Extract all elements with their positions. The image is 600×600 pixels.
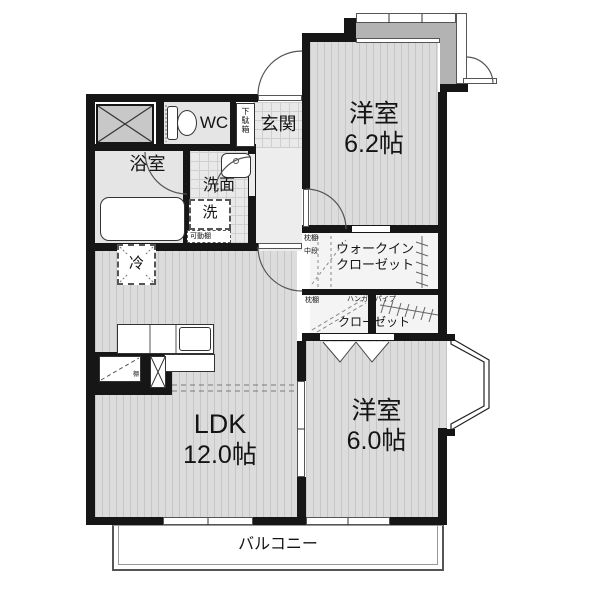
porch-side-window bbox=[456, 13, 467, 84]
wall bbox=[86, 243, 258, 251]
wic-line1: ウォークイン bbox=[315, 241, 435, 257]
closet-door-gap bbox=[320, 334, 394, 340]
bedroom-a-size: 6.2帖 bbox=[310, 129, 438, 159]
wall bbox=[302, 33, 310, 189]
bathroom-label: 浴室 bbox=[100, 154, 195, 176]
bedroom-a-label: 洋室 6.2帖 bbox=[310, 99, 438, 159]
ldk-balcony-window bbox=[163, 517, 253, 525]
ldk-label: LDK 12.0帖 bbox=[150, 408, 290, 470]
wall bbox=[86, 94, 258, 102]
refrigerator-label: 冷 bbox=[117, 255, 156, 273]
wall bbox=[297, 341, 306, 381]
sliding-door bbox=[297, 381, 305, 477]
wall bbox=[440, 84, 468, 92]
washroom-label: 洗面 bbox=[190, 176, 248, 195]
porch-window bbox=[356, 13, 456, 23]
wash-basin-icon bbox=[221, 153, 251, 178]
bedroom-a-window bbox=[356, 38, 440, 43]
wc-label: WC bbox=[196, 113, 232, 133]
balcony-label: バルコニー bbox=[114, 535, 442, 554]
bathtub-icon bbox=[100, 197, 185, 241]
closet-hanger-pipe-label: ハンガーパイプ bbox=[347, 296, 396, 303]
washing-machine-label: 洗 bbox=[189, 204, 231, 222]
ldk-name: LDK bbox=[150, 408, 290, 440]
wall bbox=[297, 477, 306, 525]
closet-pillow-shelf-label: 枕棚 bbox=[305, 297, 319, 304]
floor-plan: バルコニー WC 下駄箱 玄関 浴室 洗面 洗 可動棚 冷 棚 洋室 6.2帖 … bbox=[0, 0, 600, 600]
bedroom-a-name: 洋室 bbox=[310, 99, 438, 129]
movable-shelf-label: 可動棚 bbox=[190, 233, 211, 240]
entrance-label: 玄関 bbox=[255, 114, 302, 136]
ldk-door-panel bbox=[258, 243, 302, 249]
walk-in-closet-label: ウォークイン クローゼット bbox=[315, 241, 435, 272]
porch-door-panel bbox=[463, 78, 497, 84]
toilet-bowl-icon bbox=[177, 110, 197, 136]
ldk-size: 12.0帖 bbox=[150, 440, 290, 470]
wall bbox=[302, 94, 310, 102]
wic-line2: クローゼット bbox=[315, 257, 435, 273]
bedroom-b-label: 洋室 6.0帖 bbox=[306, 396, 447, 456]
wall bbox=[86, 517, 447, 525]
bedroom-a-door-panel bbox=[303, 189, 309, 227]
wall bbox=[156, 102, 164, 148]
shoe-cabinet-label: 下駄箱 bbox=[241, 107, 249, 134]
bedroom-b-balcony-window bbox=[306, 517, 390, 525]
pipe-space-box bbox=[96, 104, 154, 144]
entrance-door-panel bbox=[258, 95, 302, 101]
pipe-space-small bbox=[150, 356, 166, 388]
shelf-box bbox=[99, 356, 141, 382]
bedroom-b-size: 6.0帖 bbox=[306, 426, 447, 456]
kitchen-sink bbox=[179, 327, 211, 351]
wall bbox=[438, 92, 447, 233]
wall bbox=[344, 18, 356, 42]
balcony: バルコニー bbox=[112, 525, 444, 571]
wall bbox=[438, 233, 447, 338]
wic-door-gap bbox=[352, 226, 390, 232]
closet-label: クローゼット bbox=[310, 315, 438, 329]
shelf-label: 棚 bbox=[133, 372, 139, 378]
wall bbox=[86, 144, 256, 151]
bedroom-b-name: 洋室 bbox=[306, 396, 447, 426]
floor-hallway bbox=[253, 148, 302, 251]
kitchen-counter-lower bbox=[164, 354, 215, 372]
wall bbox=[86, 94, 95, 525]
